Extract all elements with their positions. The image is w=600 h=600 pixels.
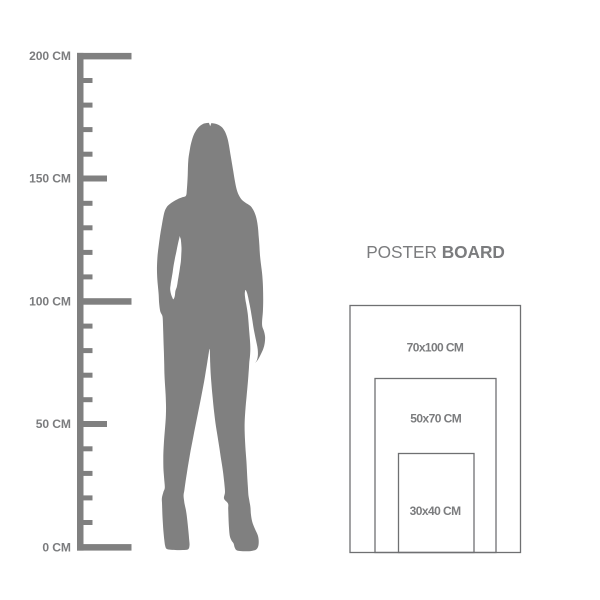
svg-text:70x100 CM: 70x100 CM [407,340,464,354]
svg-text:POSTER BOARD: POSTER BOARD [366,242,505,262]
svg-text:30x40 CM: 30x40 CM [410,504,462,518]
svg-text:200 CM: 200 CM [29,49,71,63]
svg-text:50 CM: 50 CM [36,417,71,431]
svg-text:150 CM: 150 CM [29,172,71,186]
svg-text:100 CM: 100 CM [29,295,71,309]
svg-text:50x70 CM: 50x70 CM [410,412,462,426]
svg-text:0 CM: 0 CM [42,541,70,555]
